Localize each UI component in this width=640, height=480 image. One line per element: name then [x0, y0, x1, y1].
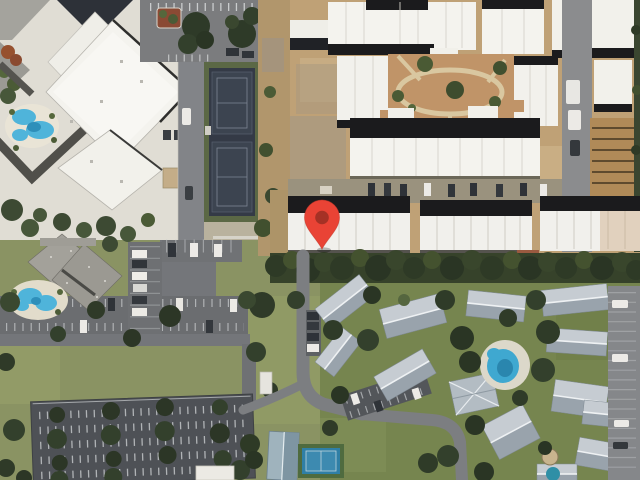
satellite-map	[0, 0, 640, 480]
clubhouse-metal-roof	[267, 431, 299, 480]
map-pin-dot	[315, 211, 329, 225]
tennis-court-south	[298, 444, 344, 478]
tennis-courts-north	[204, 62, 263, 240]
map-viewport[interactable]	[0, 0, 640, 480]
north-parking	[140, 0, 262, 62]
tree-hedge	[265, 249, 640, 283]
east-parking-lane	[608, 286, 640, 480]
north-road	[178, 62, 204, 248]
marker-shadow	[317, 247, 331, 252]
